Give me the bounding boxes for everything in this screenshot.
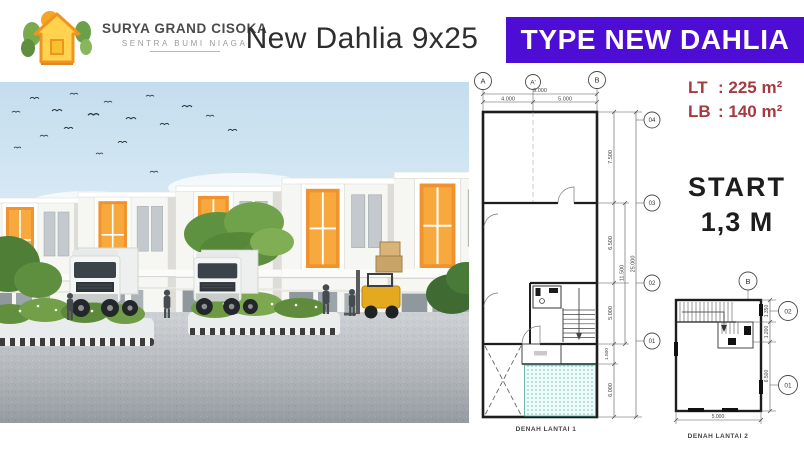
truck-right xyxy=(194,250,258,315)
hero-render xyxy=(0,82,469,423)
plan2-dim-d3: 6.500 xyxy=(764,370,770,383)
lb-value: : 140 m² xyxy=(718,100,782,124)
plan1-grid-rows xyxy=(636,112,660,349)
dim-width-total: 9.000 xyxy=(533,88,547,94)
spec-row-lt: LT : 225 m² xyxy=(688,76,804,100)
floorplan-lantai-1: A A' B 9.000 4.000 5.000 xyxy=(462,64,668,446)
grid-bubble-01: 01 xyxy=(649,339,656,345)
dim-d5: 6.000 xyxy=(608,383,614,397)
grid-bubble-04: 04 xyxy=(649,118,656,124)
plan2-walls xyxy=(674,300,763,412)
price-amount: 1,3 M xyxy=(670,207,804,238)
area-specs: LT : 225 m² LB : 140 m² xyxy=(688,76,804,124)
plan2-dim-d2: 1.200 xyxy=(764,326,770,339)
dim-width-right: 5.000 xyxy=(558,97,572,103)
tagline-rule xyxy=(150,51,220,52)
dim-total: 25.000 xyxy=(631,256,637,273)
house-logo-icon xyxy=(20,4,94,68)
plan2-bubble-02: 02 xyxy=(784,309,792,316)
price-start: START xyxy=(670,172,804,203)
lt-value: : 225 m² xyxy=(718,76,782,100)
dim-d4: 1.500 xyxy=(604,348,610,360)
grid-bubble-a1: A' xyxy=(530,79,536,86)
floorplan-lantai-2: B xyxy=(660,246,804,450)
plan1-patio xyxy=(525,365,596,416)
price-block: START 1,3 M xyxy=(670,172,804,238)
brand-logo: SURYA GRAND CISOKA SENTRA BUMI NIAGA xyxy=(20,4,267,68)
grid-bubble-a: A xyxy=(480,77,485,86)
plan2-caption: DENAH LANTAI 2 xyxy=(688,433,749,440)
lt-label: LT xyxy=(688,76,718,100)
truck-left xyxy=(70,248,138,317)
grid-bubble-b2: B xyxy=(745,277,750,286)
plan1-bathroom xyxy=(533,286,561,308)
page-title: New Dahlia 9x25 xyxy=(236,22,488,56)
grid-bubble-b: B xyxy=(594,76,599,85)
type-banner: TYPE NEW DAHLIA xyxy=(506,17,804,63)
flyer-page: SURYA GRAND CISOKA SENTRA BUMI NIAGA New… xyxy=(0,0,804,452)
plan2-dim-width: 5.000 xyxy=(712,414,725,420)
dim-d1: 7.500 xyxy=(608,150,614,164)
dim-d3: 5.000 xyxy=(608,306,614,320)
dim-d2: 6.500 xyxy=(608,236,614,250)
dim-width-left: 4.000 xyxy=(501,97,515,103)
plan2-bubble-01: 01 xyxy=(784,383,792,390)
brand-tagline: SENTRA BUMI NIAGA xyxy=(122,39,248,48)
plan1-caption: DENAH LANTAI 1 xyxy=(516,426,577,433)
grid-bubble-03: 03 xyxy=(649,201,656,207)
plan2-dim-d1: 1.350 xyxy=(764,305,770,318)
dim-mid: 11.500 xyxy=(620,265,626,281)
grid-bubble-02: 02 xyxy=(649,281,656,287)
spec-row-lb: LB : 140 m² xyxy=(688,100,804,124)
lb-label: LB xyxy=(688,100,718,124)
